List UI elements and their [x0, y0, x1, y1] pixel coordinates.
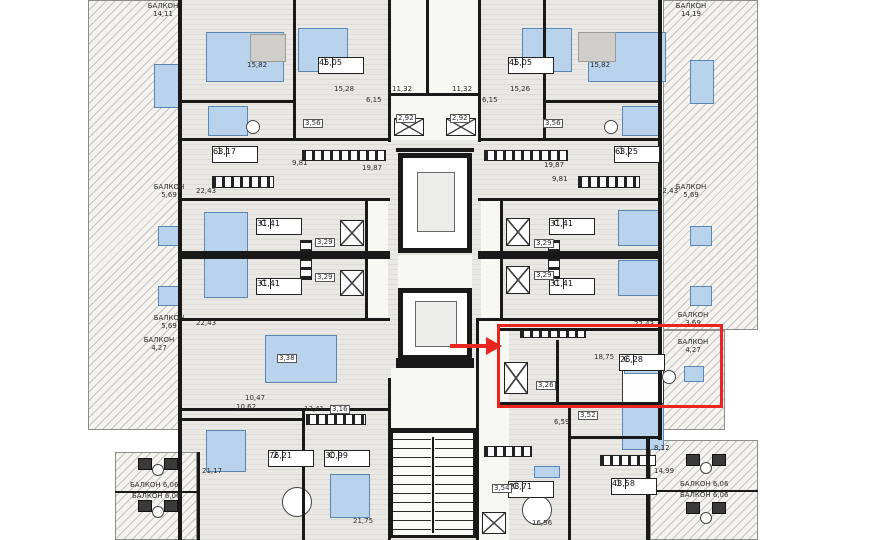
unit-label[interactable]: 145,05	[318, 57, 364, 74]
measurement-label: 3,38	[277, 354, 297, 363]
unit-area: 45,05	[509, 58, 532, 67]
measurement-label: 22,43	[196, 188, 216, 195]
unit-area: 63,17	[213, 147, 236, 156]
measurement-label: 8,12	[654, 445, 670, 452]
measurement-label: 15,28	[334, 86, 354, 93]
measurement-label: 3,54	[492, 484, 512, 493]
measurement-label: 3,52	[578, 411, 598, 420]
balcony-label: БАЛКОН 6,06	[132, 492, 180, 500]
unit-label[interactable]: С31,41	[256, 278, 302, 295]
measurement-label: 2,92	[396, 114, 416, 123]
measurement-label: 3,29	[315, 273, 335, 282]
unit-label[interactable]: С28,71	[508, 481, 554, 498]
unit-area: 31,41	[257, 279, 280, 288]
unit-area: 28,71	[509, 482, 532, 491]
measurement-label: 14,99	[654, 468, 674, 475]
balcony-label: БАЛКОН14,11	[140, 2, 186, 18]
balcony-label: БАЛКОН5,69	[146, 314, 192, 330]
measurement-label: 9,81	[552, 176, 568, 183]
measurement-label: 19,87	[362, 165, 382, 172]
unit-area: 30,99	[325, 451, 348, 460]
unit-label[interactable]: С30,99	[324, 450, 370, 467]
unit-label[interactable]: С31,41	[549, 218, 595, 235]
balcony-label: БАЛКОН 6,06	[130, 481, 178, 489]
floor-plan: 145,05145,05163,17163,25С31,41С31,41С31,…	[0, 0, 870, 540]
measurement-label: 11,32	[392, 86, 412, 93]
unit-area: 31,41	[257, 219, 280, 228]
balcony-label: БАЛКОН 6,06	[680, 491, 728, 499]
measurement-label: 15,82	[247, 62, 267, 69]
unit-area: 45,05	[319, 58, 342, 67]
measurement-label: 6,15	[482, 97, 498, 104]
unit-area: 76,21	[269, 451, 292, 460]
labels-layer: 145,05145,05163,17163,25С31,41С31,41С31,…	[0, 0, 870, 540]
measurement-label: 2,92	[450, 114, 470, 123]
unit-area: 63,25	[615, 147, 638, 156]
unit-label[interactable]: С31,41	[256, 218, 302, 235]
unit-label[interactable]: 163,17	[212, 146, 258, 163]
balcony-label: БАЛКОН5,69	[146, 183, 192, 199]
measurement-label: 22,43	[196, 320, 216, 327]
balcony-label: БАЛКОН4,27	[136, 336, 182, 352]
unit-area: 31,41	[550, 279, 573, 288]
measurement-label: 3,16	[330, 405, 350, 414]
measurement-label: 6,59	[554, 419, 570, 426]
unit-label[interactable]: 276,21	[268, 450, 314, 467]
measurement-label: 22,43	[658, 188, 678, 195]
unit-label[interactable]: 145,05	[508, 57, 554, 74]
measurement-label: 15,82	[590, 62, 610, 69]
measurement-label: 3,29	[315, 238, 335, 247]
unit-area: 31,41	[550, 219, 573, 228]
balcony-label: БАЛКОН14,19	[668, 2, 714, 18]
measurement-label: 3,56	[543, 119, 563, 128]
measurement-label: 13,41	[304, 406, 324, 413]
measurement-label: 9,81	[292, 160, 308, 167]
selected-unit-highlight[interactable]	[497, 324, 723, 408]
measurement-label: 15,26	[510, 86, 530, 93]
balcony-label: БАЛКОН 6,06	[680, 480, 728, 488]
measurement-label: 3,29	[534, 271, 554, 280]
measurement-label: 16,56	[532, 520, 552, 527]
measurement-label: 19,87	[544, 162, 564, 169]
unit-label[interactable]: С31,41	[549, 278, 595, 295]
unit-area: 43,58	[612, 479, 635, 488]
unit-label[interactable]: 163,25	[614, 146, 660, 163]
measurement-label: 21,17	[202, 468, 222, 475]
measurement-label: 6,15	[366, 97, 382, 104]
measurement-label: 10,47	[245, 395, 265, 402]
selection-arrow-tail	[450, 344, 490, 348]
measurement-label: 10,62	[236, 404, 256, 411]
selection-arrow-icon	[486, 337, 502, 355]
measurement-label: 3,29	[534, 239, 554, 248]
measurement-label: 11,32	[452, 86, 472, 93]
unit-label[interactable]: 143,58	[611, 478, 657, 495]
measurement-label: 21,75	[353, 518, 373, 525]
measurement-label: 3,56	[303, 119, 323, 128]
